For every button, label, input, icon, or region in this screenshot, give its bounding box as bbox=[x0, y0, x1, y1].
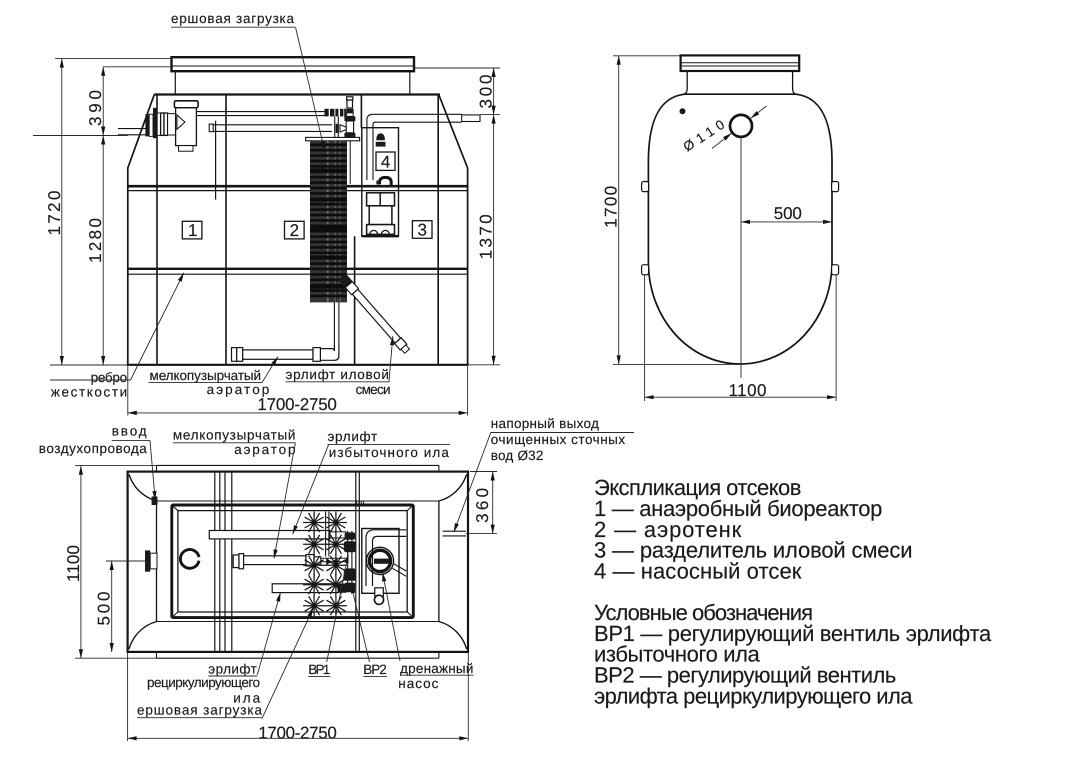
svg-text:мелкопузырчатый: мелкопузырчатый bbox=[173, 427, 296, 442]
svg-text:ввод: ввод bbox=[112, 424, 147, 439]
svg-text:500: 500 bbox=[95, 592, 114, 626]
svg-text:эрлифт иловой: эрлифт иловой bbox=[286, 367, 389, 382]
svg-text:4: 4 bbox=[381, 153, 390, 172]
svg-text:ершовая загрузка: ершовая загрузка bbox=[171, 11, 294, 26]
svg-text:1700-2750: 1700-2750 bbox=[257, 395, 337, 414]
svg-text:избыточного ила: избыточного ила bbox=[329, 445, 450, 460]
svg-text:1700: 1700 bbox=[602, 186, 621, 228]
svg-text:смеси: смеси bbox=[356, 382, 391, 397]
svg-text:ершовая загрузка: ершовая загрузка bbox=[137, 702, 262, 717]
svg-text:3: 3 bbox=[418, 220, 427, 239]
svg-text:390: 390 bbox=[86, 90, 105, 126]
svg-text:500: 500 bbox=[774, 204, 802, 223]
svg-text:очищенных сточных: очищенных сточных bbox=[491, 432, 626, 447]
svg-text:ВР2: ВР2 bbox=[363, 662, 387, 677]
svg-text:360: 360 bbox=[473, 488, 492, 523]
svg-text:напорный выход: напорный выход bbox=[491, 416, 599, 431]
svg-text:1100: 1100 bbox=[729, 381, 767, 400]
svg-text:эрлифта рециркулирующего ила: эрлифта рециркулирующего ила bbox=[594, 683, 913, 708]
svg-text:ВР1: ВР1 bbox=[308, 662, 330, 677]
svg-text:1700-2750: 1700-2750 bbox=[258, 724, 337, 743]
svg-text:4 — насосный отсек: 4 — насосный отсек bbox=[594, 558, 802, 583]
svg-text:дренажный: дренажный bbox=[400, 661, 473, 676]
svg-text:ребро: ребро bbox=[91, 370, 128, 385]
svg-text:1100: 1100 bbox=[64, 545, 83, 582]
svg-text:эрлифт: эрлифт bbox=[328, 429, 378, 444]
svg-text:1: 1 bbox=[188, 221, 197, 240]
svg-text:рециркулирующего: рециркулирующего bbox=[147, 675, 260, 690]
svg-text:вод Ø32: вод Ø32 bbox=[491, 448, 544, 463]
svg-text:2: 2 bbox=[290, 221, 299, 240]
svg-text:воздухопровода: воздухопровода bbox=[39, 441, 147, 456]
svg-text:мелкопузырчатый: мелкопузырчатый bbox=[150, 368, 262, 383]
svg-text:жесткости: жесткости bbox=[51, 384, 127, 399]
svg-text:насос: насос bbox=[398, 676, 438, 691]
svg-text:300: 300 bbox=[477, 75, 496, 109]
